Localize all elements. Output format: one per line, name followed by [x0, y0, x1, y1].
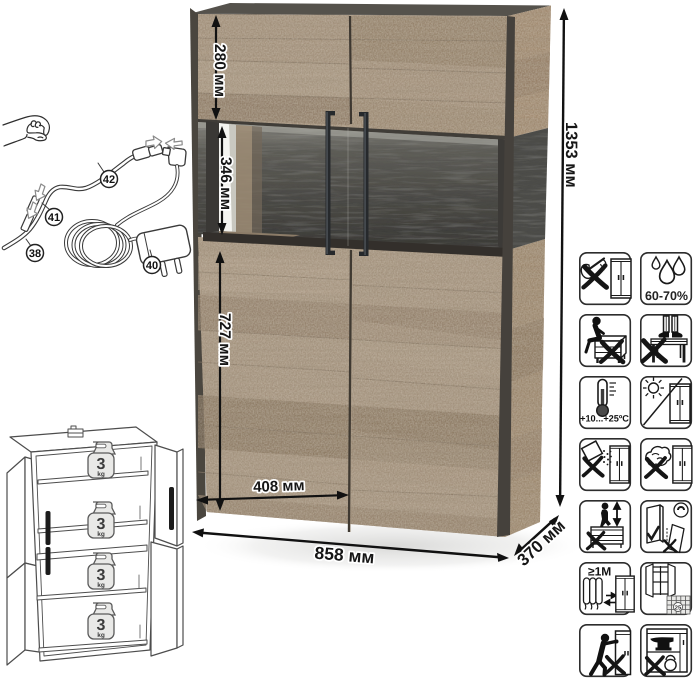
svg-text:1353 мм: 1353 мм — [562, 122, 580, 188]
svg-text:41: 41 — [48, 212, 60, 224]
svg-text:346 мм: 346 мм — [217, 157, 234, 210]
svg-text:kg: kg — [97, 582, 105, 589]
svg-text:727 мм: 727 мм — [216, 313, 233, 366]
svg-text:60-70%: 60-70% — [645, 289, 688, 303]
svg-text:kg: kg — [97, 632, 105, 639]
svg-text:25: 25 — [675, 605, 682, 612]
svg-text:+10...+25ºC: +10...+25ºC — [580, 414, 629, 424]
svg-text:kg: kg — [97, 471, 105, 478]
svg-text:≥1М: ≥1М — [588, 565, 611, 579]
svg-text:42: 42 — [103, 174, 115, 186]
svg-text:40: 40 — [146, 260, 158, 272]
svg-text:280 мм: 280 мм — [211, 44, 228, 97]
svg-text:38: 38 — [29, 248, 41, 260]
svg-text:kg: kg — [97, 531, 105, 538]
svg-text:408 мм: 408 мм — [253, 477, 305, 496]
